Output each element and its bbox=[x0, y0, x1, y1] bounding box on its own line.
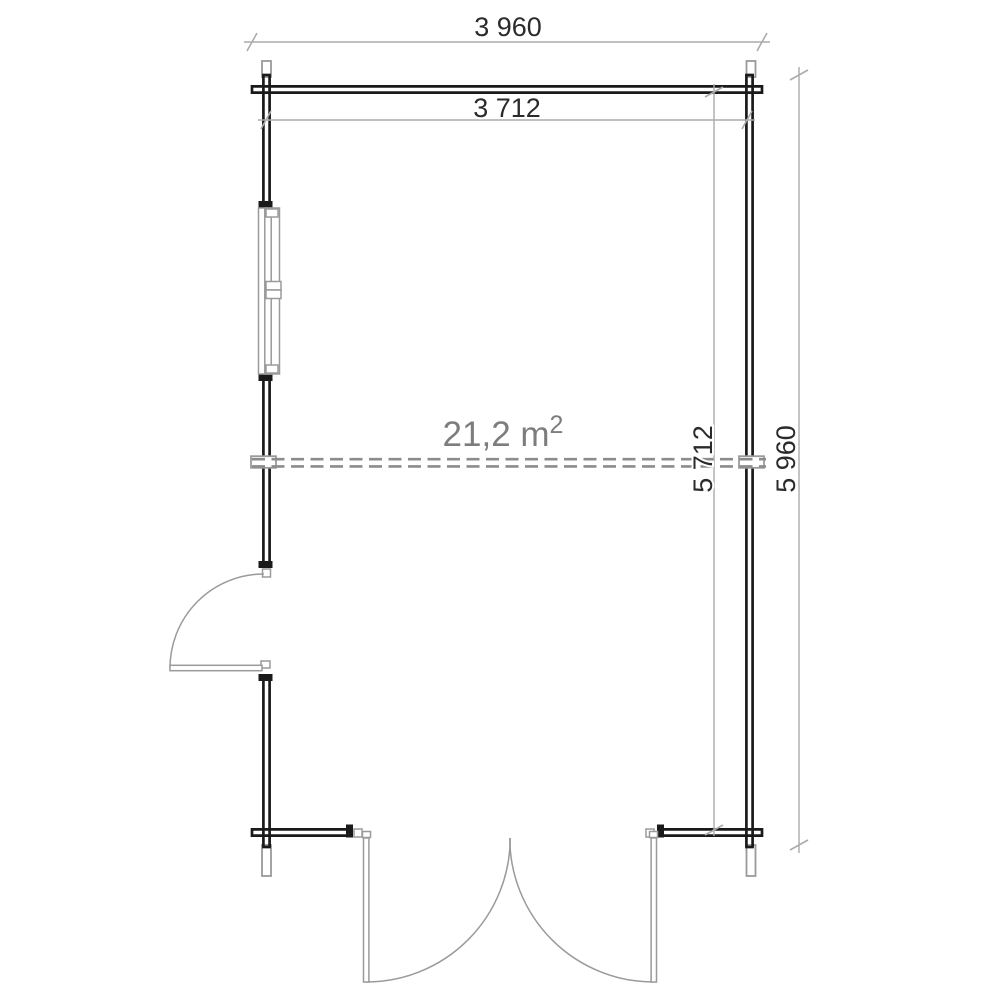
inner-width-value: 3 712 bbox=[473, 93, 541, 123]
window-block-bottom bbox=[266, 365, 278, 373]
outer-width-value: 3 960 bbox=[474, 12, 542, 42]
window-left-wall bbox=[259, 208, 282, 374]
door-leaf bbox=[170, 665, 262, 670]
wall-bottom bbox=[252, 825, 762, 838]
double-door-swing-arc-right bbox=[510, 838, 654, 982]
dimension-outer-width: 3 960 bbox=[244, 12, 770, 51]
double-door-bottom-wall bbox=[354, 829, 658, 982]
door-left-wall bbox=[170, 569, 271, 671]
double-door-hinge-left bbox=[363, 832, 371, 838]
wall-cap-door-top bbox=[259, 561, 273, 568]
wall-cap-double-door-left bbox=[346, 825, 353, 838]
wall-cap-window-top bbox=[259, 201, 273, 208]
area-label: 21,2 m2 bbox=[443, 411, 564, 454]
double-door-swing-arc-left bbox=[366, 838, 510, 982]
log-end-bottom-left bbox=[262, 845, 271, 876]
door-frame-notch-top bbox=[263, 569, 271, 577]
wall-cap-door-bottom bbox=[259, 674, 273, 681]
log-end-bottom-right bbox=[747, 845, 756, 876]
inner-height-value: 5 712 bbox=[688, 425, 718, 493]
log-corner-ends bbox=[262, 61, 756, 876]
double-door-hinge-right bbox=[650, 832, 658, 838]
floor-plan-page: 3 960 3 712 5 712 5 960 21,2 m2 bbox=[0, 0, 1000, 1000]
double-door-leaf-left bbox=[364, 838, 369, 982]
dimension-inner-width: 3 712 bbox=[258, 93, 755, 129]
floor-plan-drawing: 3 960 3 712 5 712 5 960 21,2 m2 bbox=[0, 0, 1000, 1000]
door-swing-arc bbox=[170, 574, 264, 668]
wall-cap-window-bottom bbox=[259, 374, 273, 381]
double-door-frame-notch-left bbox=[354, 829, 362, 837]
double-door-leaf-right bbox=[651, 838, 656, 982]
window-divider-lower bbox=[266, 290, 281, 299]
area-superscript: 2 bbox=[550, 411, 564, 439]
area-value: 21,2 m bbox=[443, 415, 550, 454]
window-divider-upper bbox=[266, 282, 281, 291]
window-block-top bbox=[266, 209, 278, 217]
walls bbox=[252, 75, 762, 847]
dimension-outer-height: 5 960 bbox=[771, 67, 808, 853]
dimension-inner-height: 5 712 bbox=[688, 84, 723, 836]
outer-height-value: 5 960 bbox=[771, 425, 801, 493]
